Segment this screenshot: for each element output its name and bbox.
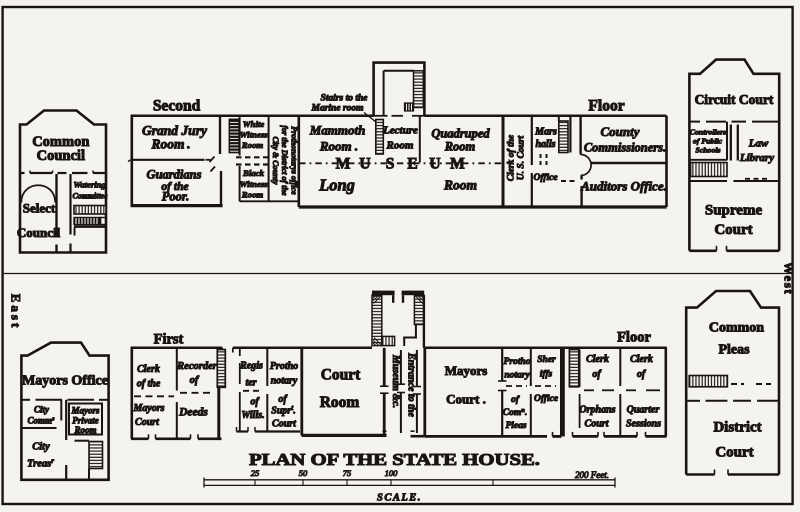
svg-text:100: 100: [385, 468, 399, 478]
svg-text:Room: Room: [320, 394, 360, 411]
svg-text:Marine room: Marine room: [311, 104, 364, 114]
svg-text:25: 25: [251, 468, 260, 478]
svg-text:notary: notary: [271, 376, 298, 387]
svg-text:West: West: [782, 262, 797, 295]
svg-text:Room: Room: [241, 190, 264, 200]
svg-text:Black: Black: [242, 168, 265, 178]
svg-text:Private: Private: [72, 416, 99, 426]
svg-text:E: E: [407, 156, 417, 173]
svg-text:Witness: Witness: [240, 179, 269, 189]
svg-text:Sher: Sher: [537, 355, 556, 365]
svg-text:Law: Law: [748, 138, 769, 150]
svg-text:Pleas: Pleas: [718, 343, 750, 358]
svg-text:Mars: Mars: [534, 127, 557, 138]
svg-text:East: East: [9, 294, 24, 331]
svg-text:Floor: Floor: [588, 98, 624, 115]
svg-text:Clerk of the: Clerk of the: [507, 134, 517, 181]
svg-text:Quadruped: Quadruped: [431, 127, 490, 141]
svg-text:Mayors: Mayors: [132, 403, 164, 414]
svg-text:U: U: [359, 156, 370, 173]
svg-text:Second: Second: [153, 98, 201, 115]
svg-text:Select: Select: [23, 201, 56, 216]
svg-text:Court: Court: [135, 417, 160, 428]
svg-text:M: M: [450, 156, 465, 173]
svg-text:Schools: Schools: [695, 146, 720, 155]
svg-text:First: First: [154, 332, 184, 348]
svg-text:of Public: of Public: [693, 137, 723, 146]
svg-text:Circuit Court: Circuit Court: [695, 92, 774, 107]
svg-text:Controllers: Controllers: [690, 128, 726, 137]
svg-text:City & County: City & County: [271, 136, 280, 185]
svg-text:Court: Court: [272, 419, 297, 430]
svg-text:Mayors: Mayors: [445, 363, 488, 378]
svg-text:Room: Room: [443, 178, 477, 193]
svg-text:Mammoth: Mammoth: [309, 123, 366, 138]
svg-text:Clerk: Clerk: [630, 354, 653, 365]
svg-text:Court: Court: [321, 367, 361, 384]
svg-text:SCALE.: SCALE.: [377, 493, 422, 504]
svg-text:Room: Room: [386, 140, 414, 152]
svg-text:Office: Office: [534, 394, 559, 404]
svg-text:Mayors: Mayors: [70, 406, 99, 416]
svg-text:Guardians: Guardians: [147, 168, 202, 182]
svg-text:Quarter: Quarter: [627, 405, 660, 416]
svg-text:halls: halls: [535, 139, 555, 150]
svg-text:District: District: [713, 420, 761, 436]
svg-text:Prothonotarys office: Prothonotarys office: [290, 126, 299, 195]
svg-text:Office: Office: [533, 173, 558, 183]
svg-text:M: M: [336, 156, 351, 173]
svg-text:City: City: [34, 405, 50, 415]
svg-text:Deeds: Deeds: [178, 407, 208, 419]
svg-text:Clerk: Clerk: [586, 354, 609, 365]
svg-text:Orphans: Orphans: [579, 405, 615, 416]
svg-text:Room: Room: [241, 140, 264, 150]
svg-text:Court: Court: [585, 419, 610, 430]
svg-text:Poor.: Poor.: [162, 190, 189, 204]
svg-text:Floor: Floor: [617, 330, 651, 346]
svg-text:Protho: Protho: [504, 357, 531, 367]
svg-text:50: 50: [299, 468, 308, 478]
svg-text:Court: Court: [715, 445, 753, 461]
svg-text:of: of: [190, 375, 200, 386]
svg-text:Entrance to the: Entrance to the: [406, 352, 417, 417]
svg-text:S: S: [386, 156, 395, 173]
svg-text:Watering: Watering: [73, 180, 106, 190]
svg-text:City: City: [32, 442, 50, 453]
svg-text:notary: notary: [504, 371, 530, 381]
svg-text:Supreme: Supreme: [705, 203, 763, 219]
svg-text:Council: Council: [37, 148, 85, 164]
svg-text:Long: Long: [318, 176, 355, 195]
svg-text:White: White: [243, 119, 265, 129]
svg-text:Wills.: Wills.: [241, 410, 264, 421]
svg-text:Lecture: Lecture: [382, 125, 418, 137]
svg-text:200 Feet.: 200 Feet.: [575, 470, 609, 480]
svg-text:County: County: [600, 124, 639, 139]
svg-text:for the District of the: for the District of the: [280, 125, 289, 196]
svg-text:Room: Room: [444, 140, 476, 154]
svg-text:of: of: [511, 395, 520, 405]
svg-text:Room .: Room .: [319, 139, 358, 154]
svg-text:Regis: Regis: [239, 361, 263, 372]
svg-text:Mayors Office: Mayors Office: [22, 374, 108, 389]
svg-text:Commissioners.: Commissioners.: [584, 141, 666, 155]
svg-text:Sessions: Sessions: [626, 419, 661, 430]
svg-text:Comms: Comms: [27, 416, 55, 426]
svg-text:Museum &c.: Museum &c.: [390, 354, 401, 408]
svg-text:Witness: Witness: [240, 130, 269, 140]
svg-text:Stairs to the: Stairs to the: [321, 94, 369, 104]
svg-text:Room .: Room .: [150, 137, 190, 152]
svg-text:U: U: [429, 156, 440, 173]
svg-text:Clerk: Clerk: [137, 364, 160, 375]
svg-text:of the: of the: [137, 379, 161, 390]
svg-text:Room: Room: [73, 425, 96, 435]
svg-text:Recorder: Recorder: [176, 361, 218, 372]
svg-text:75: 75: [343, 468, 352, 478]
svg-text:U. S. Court: U. S. Court: [517, 135, 527, 180]
svg-text:Pleas: Pleas: [505, 421, 526, 431]
svg-text:iffs: iffs: [540, 370, 553, 380]
svg-text:Treasr: Treasr: [27, 457, 54, 470]
svg-text:Court .: Court .: [446, 392, 486, 407]
svg-text:Protho: Protho: [270, 361, 298, 372]
svg-text:Council: Council: [17, 225, 61, 240]
svg-text:PLAN OF THE STATE HOUSE.: PLAN OF THE STATE HOUSE.: [249, 450, 540, 469]
svg-text:Library: Library: [739, 152, 774, 164]
svg-text:Common: Common: [709, 321, 764, 336]
svg-text:ter: ter: [245, 378, 256, 389]
svg-text:Committee: Committee: [72, 192, 108, 201]
svg-text:Auditors Office.: Auditors Office.: [580, 179, 667, 194]
svg-text:Court: Court: [714, 222, 752, 238]
